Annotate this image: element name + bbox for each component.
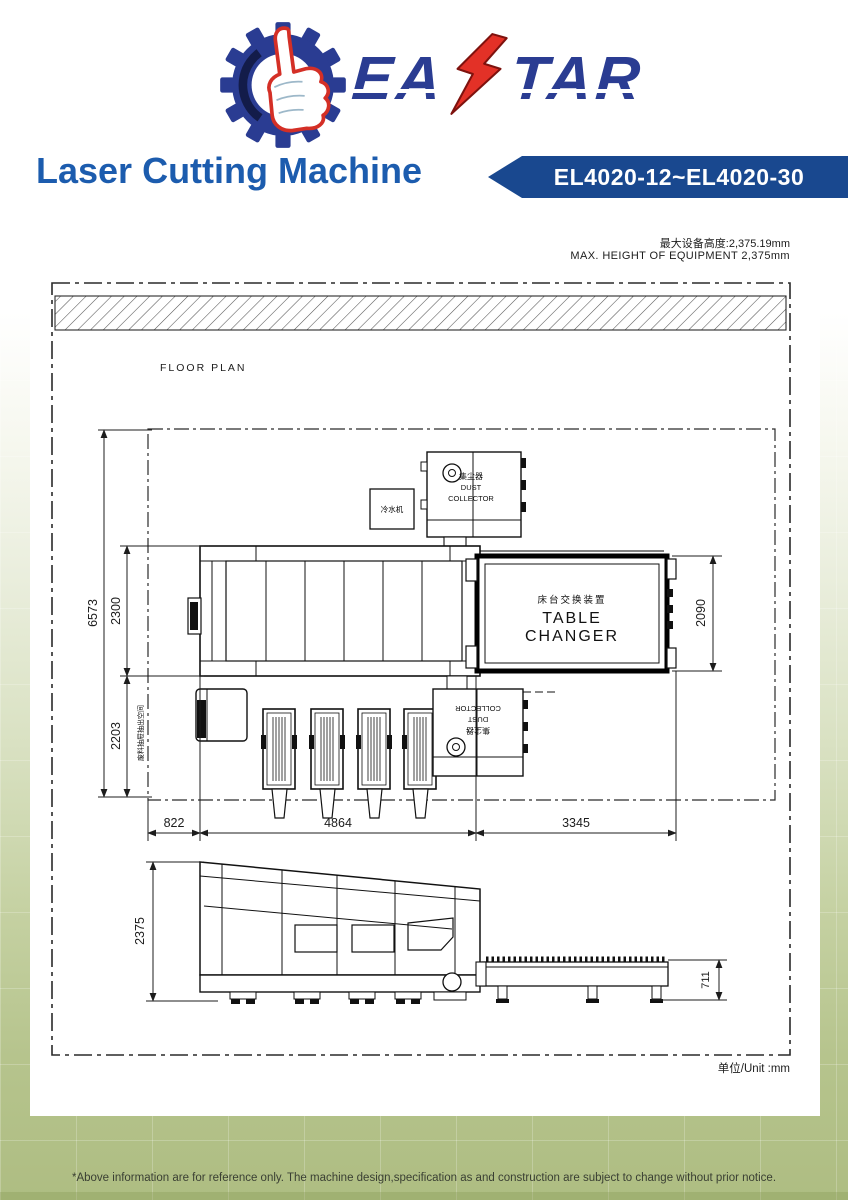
page: EA TAR Laser Cutting Machine EL4020-12~E… — [0, 0, 848, 1200]
bottom-edge-strip — [0, 1192, 848, 1200]
max-height-note-en: MAX. HEIGHT OF EQUIPMENT 2,375mm — [480, 250, 790, 262]
dim-changer-length: 3345 — [562, 816, 590, 830]
dim-depth-machine: 2300 — [109, 597, 123, 625]
elevation-view — [200, 862, 668, 1004]
dust-collector-top-label: 集尘器 DUST COLLECTOR — [428, 471, 514, 504]
dim-changer-depth: 2090 — [694, 599, 708, 627]
machine-plan — [188, 546, 480, 676]
exchange-table-elevation — [476, 959, 668, 1003]
dim-table-height: 711 — [700, 971, 712, 989]
unit-note: 单位/Unit :mm — [600, 1060, 790, 1076]
dim-machine-length: 4864 — [324, 816, 352, 830]
machine-feet — [230, 992, 466, 1004]
max-height-note-cn: 最大设备高度:2,375.19mm — [500, 235, 790, 251]
chiller-label: 冷水机 — [370, 489, 414, 529]
floor-plan-drawing — [0, 0, 848, 1200]
dim-depth-total: 6573 — [86, 599, 100, 627]
dim-machine-height: 2375 — [133, 917, 147, 945]
wall-hatch — [55, 296, 786, 330]
footer-disclaimer: *Above information are for reference onl… — [0, 1172, 848, 1184]
dim-front-offset: 822 — [164, 816, 185, 830]
drawer-pullout-note: 废料抽屉抽出空间 — [136, 705, 146, 761]
dim-depth-drawer: 2203 — [109, 722, 123, 750]
floor-plan-label: FLOOR PLAN — [160, 362, 247, 374]
control-box — [196, 689, 247, 741]
pallet-drawers — [261, 709, 438, 818]
dust-collector-bottom-label: 集尘器 DUST COLLECTOR — [435, 703, 521, 736]
table-changer-label: 床台交换装置 TABLE CHANGER — [488, 592, 656, 646]
